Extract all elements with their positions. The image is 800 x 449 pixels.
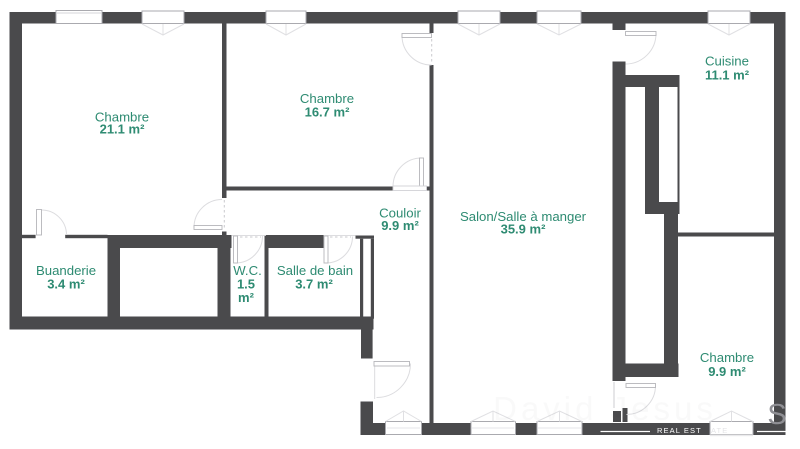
svg-text:David Jesus: David Jesus xyxy=(493,390,717,427)
svg-text:m²: m² xyxy=(238,290,255,305)
svg-text:Chambre: Chambre xyxy=(700,350,754,365)
svg-text:ATE: ATE xyxy=(711,426,728,435)
svg-text:3.7 m²: 3.7 m² xyxy=(295,277,333,292)
svg-text:S: S xyxy=(767,399,786,431)
svg-text:11.1 m²: 11.1 m² xyxy=(705,68,750,83)
svg-text:9.9 m²: 9.9 m² xyxy=(381,218,419,233)
svg-text:3.4 m²: 3.4 m² xyxy=(47,277,85,292)
svg-text:9.9 m²: 9.9 m² xyxy=(708,364,746,379)
svg-text:21.1 m²: 21.1 m² xyxy=(100,122,145,137)
svg-text:35.9 m²: 35.9 m² xyxy=(501,222,546,237)
svg-text:REAL EST: REAL EST xyxy=(657,426,702,435)
svg-text:16.7 m²: 16.7 m² xyxy=(305,105,350,120)
svg-text:Cuisine: Cuisine xyxy=(705,54,749,69)
